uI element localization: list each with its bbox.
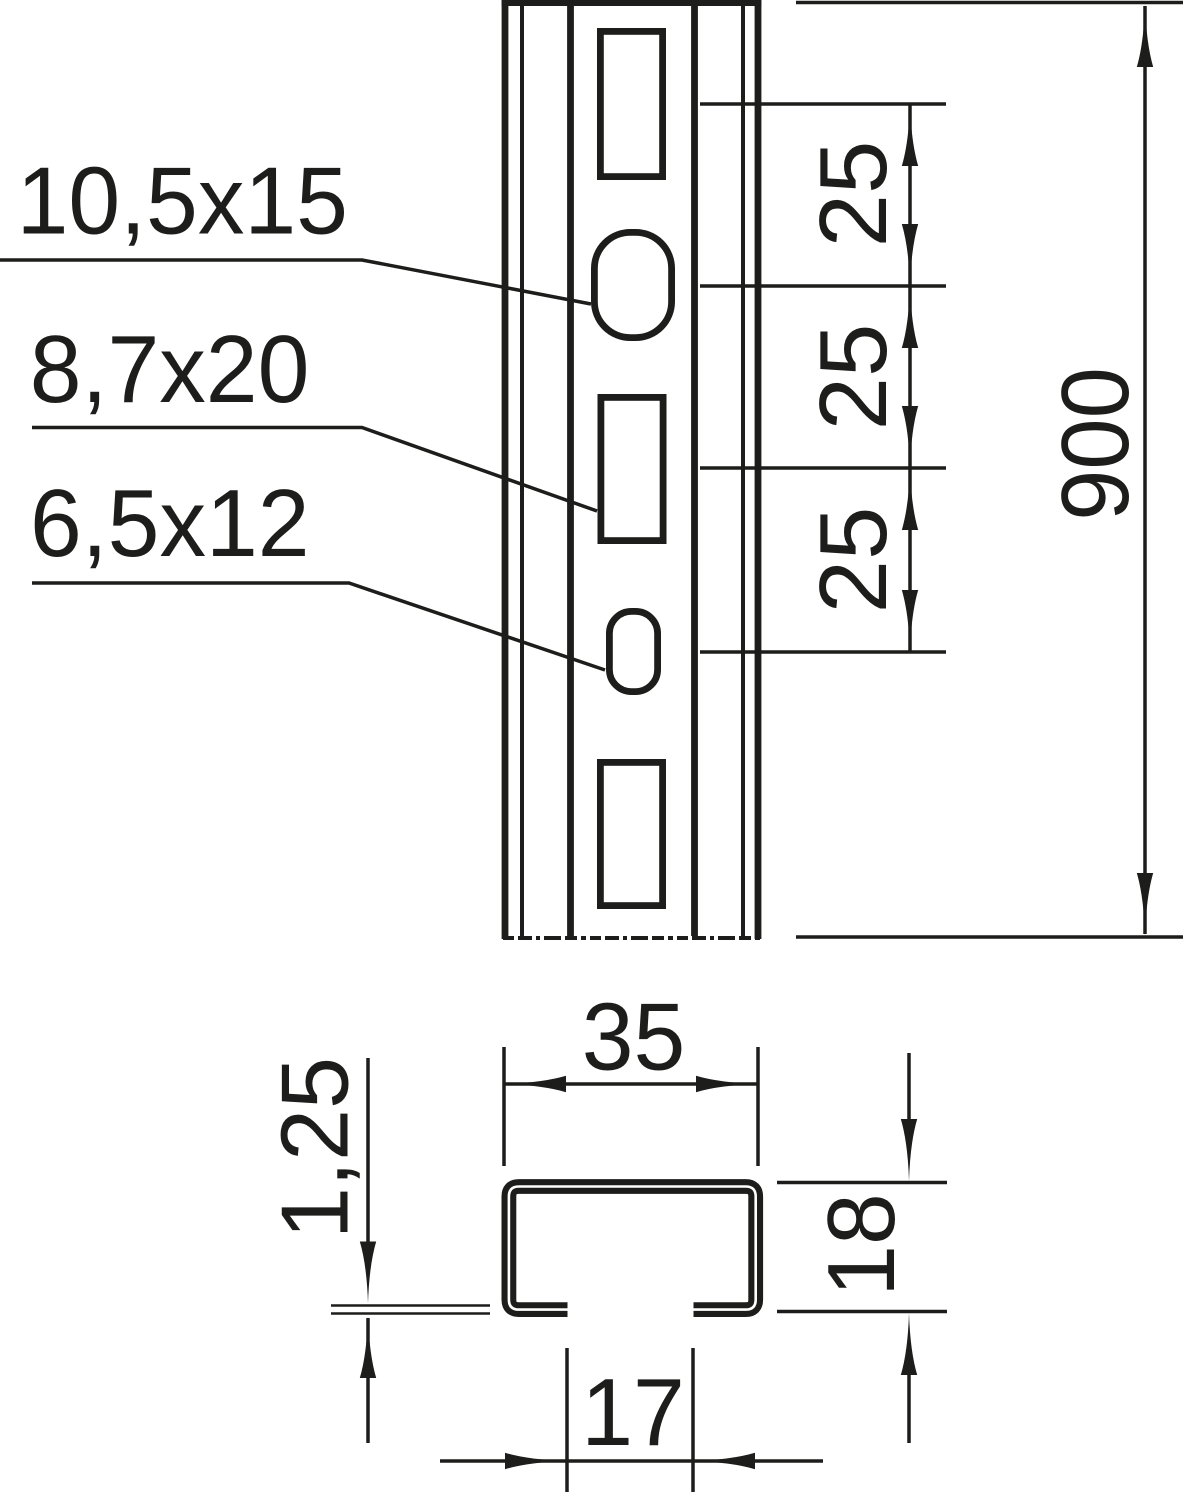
svg-text:8,7x20: 8,7x20 [30, 316, 310, 424]
svg-text:1,25: 1,25 [261, 1057, 368, 1239]
svg-text:35: 35 [582, 983, 686, 1091]
svg-text:10,5x15: 10,5x15 [17, 147, 348, 255]
svg-text:25: 25 [800, 324, 907, 431]
svg-text:17: 17 [581, 1359, 685, 1467]
svg-text:18: 18 [808, 1193, 916, 1297]
svg-text:900: 900 [1041, 367, 1148, 521]
svg-text:25: 25 [800, 141, 907, 248]
svg-text:6,5x12: 6,5x12 [30, 470, 310, 578]
svg-text:25: 25 [800, 507, 907, 614]
